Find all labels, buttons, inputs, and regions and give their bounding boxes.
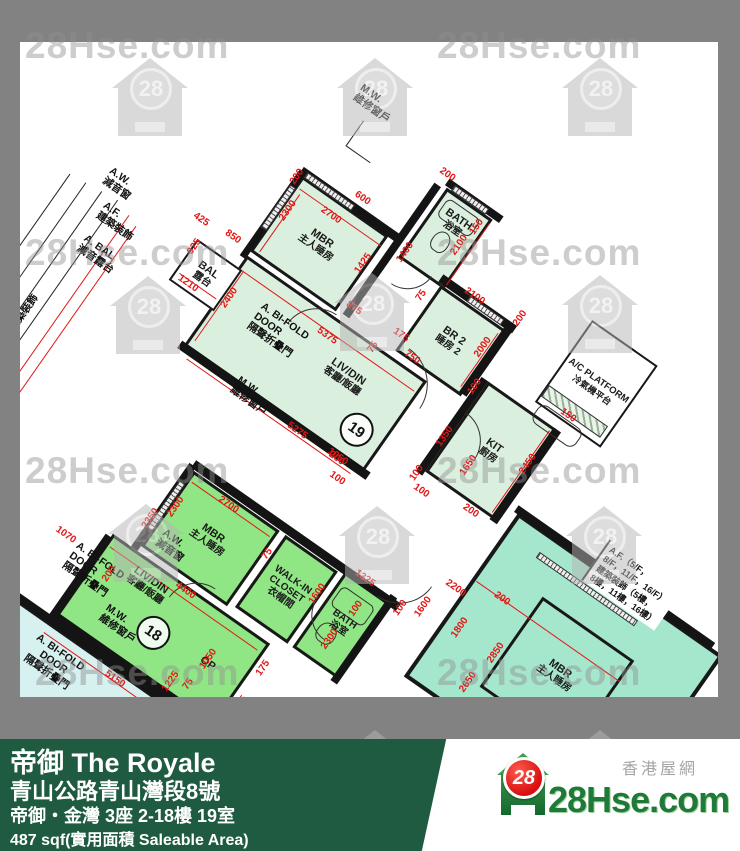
plan-canvas: MBR主人睡房 BATH浴室 BR 2睡房 2 LIV/DIN客廳/飯廳 19 … [20,42,718,697]
frame-right [718,0,740,739]
anno-mw-top: M.W.維修窗戶 [351,83,399,126]
info-banner: 帝御 The Royale 青山公路青山灣段8號 帝御・金灣 3座 2-18樓 … [0,739,740,851]
site-tagline: 香港屋網 [622,755,698,779]
left-structure [20,151,154,460]
dimension-value: 850 [223,228,243,247]
dimension-value: 425 [191,210,211,229]
estate-unit: 帝御・金灣 3座 2-18樓 19室 [10,802,235,828]
leader-line [345,145,370,163]
frame-top [0,0,740,42]
estate-area: 487 sqf(實用面積 Saleable Area) [10,826,249,850]
dimension-value: 100 [407,463,426,483]
logo-28-badge: 28 [503,757,545,799]
dimension-value: 75 [414,288,429,303]
dimension-value: 1070 [53,524,78,546]
dimension-value: 100 [411,482,431,501]
frame-left [0,0,20,739]
floorplan-page: { "watermark": { "text": "28Hse.com", "l… [0,0,740,851]
frame-bottom [0,697,740,739]
site-name: 28Hse.com [548,779,729,821]
floorplan-image: MBR主人睡房 BATH浴室 BR 2睡房 2 LIV/DIN客廳/飯廳 19 … [0,0,740,739]
logo-door [511,805,535,815]
dimension-value: 100 [327,469,347,488]
leader-line [346,121,364,146]
28hse-logo-icon: 28 [497,753,549,823]
